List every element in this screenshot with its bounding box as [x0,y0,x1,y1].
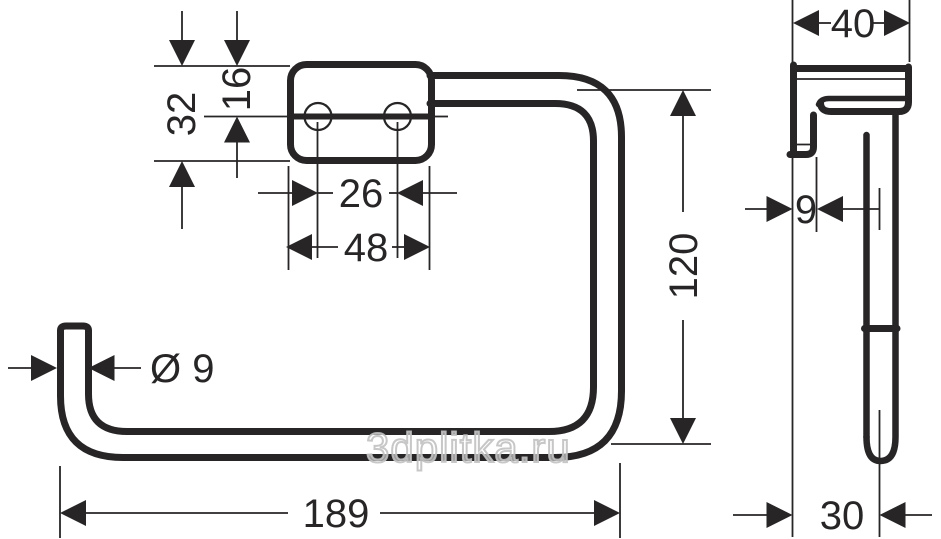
wall-to-tube-center-label: 30 [820,494,865,538]
arrowhead [31,355,57,381]
bracket-right-edge-and-arm [821,67,909,112]
arrowhead [767,502,793,528]
arrowhead [670,418,696,444]
tube-diameter-label: Ø 9 [150,347,214,391]
arrowhead [404,234,430,260]
wall-plate-depth-label: 9 [795,188,817,232]
arrowhead [594,500,620,526]
plate-height-label: 32 [160,92,204,137]
arrowhead [397,180,423,206]
side-dimensions: 40 9 30 [733,0,932,538]
arrowhead [224,40,250,66]
arrowhead [60,500,86,526]
tube-right-edge-and-bottom-cap [867,112,896,461]
ring-outer-edge [61,76,622,458]
arrowhead [89,355,115,381]
arrowhead [884,10,910,36]
arrowhead [793,10,819,36]
front-view [61,65,622,458]
hook-end-cap [61,326,89,332]
arrowhead [292,180,318,206]
arrowhead [767,196,793,222]
towel-ring-dimension-drawing: 32 16 26 48 Ø 9 [0,0,941,539]
hole-spacing-label: 26 [339,172,384,216]
arrowhead [286,234,312,260]
technical-drawing-page: 32 16 26 48 Ø 9 [0,0,941,539]
depth-label: 40 [831,2,876,46]
side-view [790,65,909,461]
arrowhead [817,196,843,222]
overall-height-label: 120 [662,233,706,300]
arrowhead [670,90,696,116]
plate-top-to-hole-label: 16 [215,67,259,112]
arm-top-edge [819,99,907,105]
arrowhead [224,117,250,143]
overall-width-label: 189 [303,492,370,536]
arrowhead [169,40,195,66]
plate-width-label: 48 [344,226,389,270]
arrowhead [169,161,195,187]
arrowhead [880,502,906,528]
